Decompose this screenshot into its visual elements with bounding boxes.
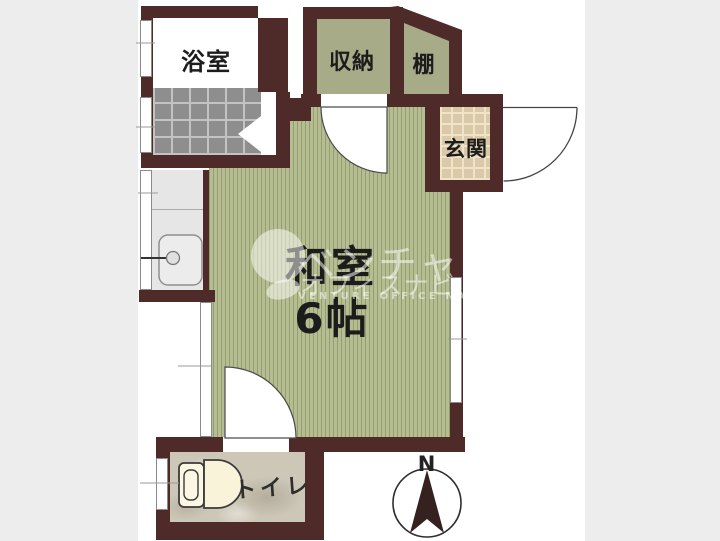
watermark-line3: VENTURE OFFICE NAVI [298, 291, 485, 302]
room-label-closet: 収納 [329, 44, 375, 76]
compass-north-label: N [418, 452, 437, 476]
floorplan: 浴室 収納 棚 玄関 和室 6帖 トイレ N ベンチャー オフィスナビ VENT… [0, 0, 720, 541]
room-label-shelf: 棚 [412, 47, 435, 79]
entrance-door-swing [503, 108, 577, 182]
closet-door-swing [321, 107, 387, 173]
room-label-entrance: 玄関 [444, 133, 488, 163]
sink [159, 235, 202, 285]
room-door-swing [225, 367, 296, 438]
bath-door-triangle [238, 116, 261, 152]
room-label-toilet: トイレ [233, 467, 313, 504]
room-label-bath: 浴室 [181, 42, 231, 77]
sink-drain [167, 252, 180, 265]
